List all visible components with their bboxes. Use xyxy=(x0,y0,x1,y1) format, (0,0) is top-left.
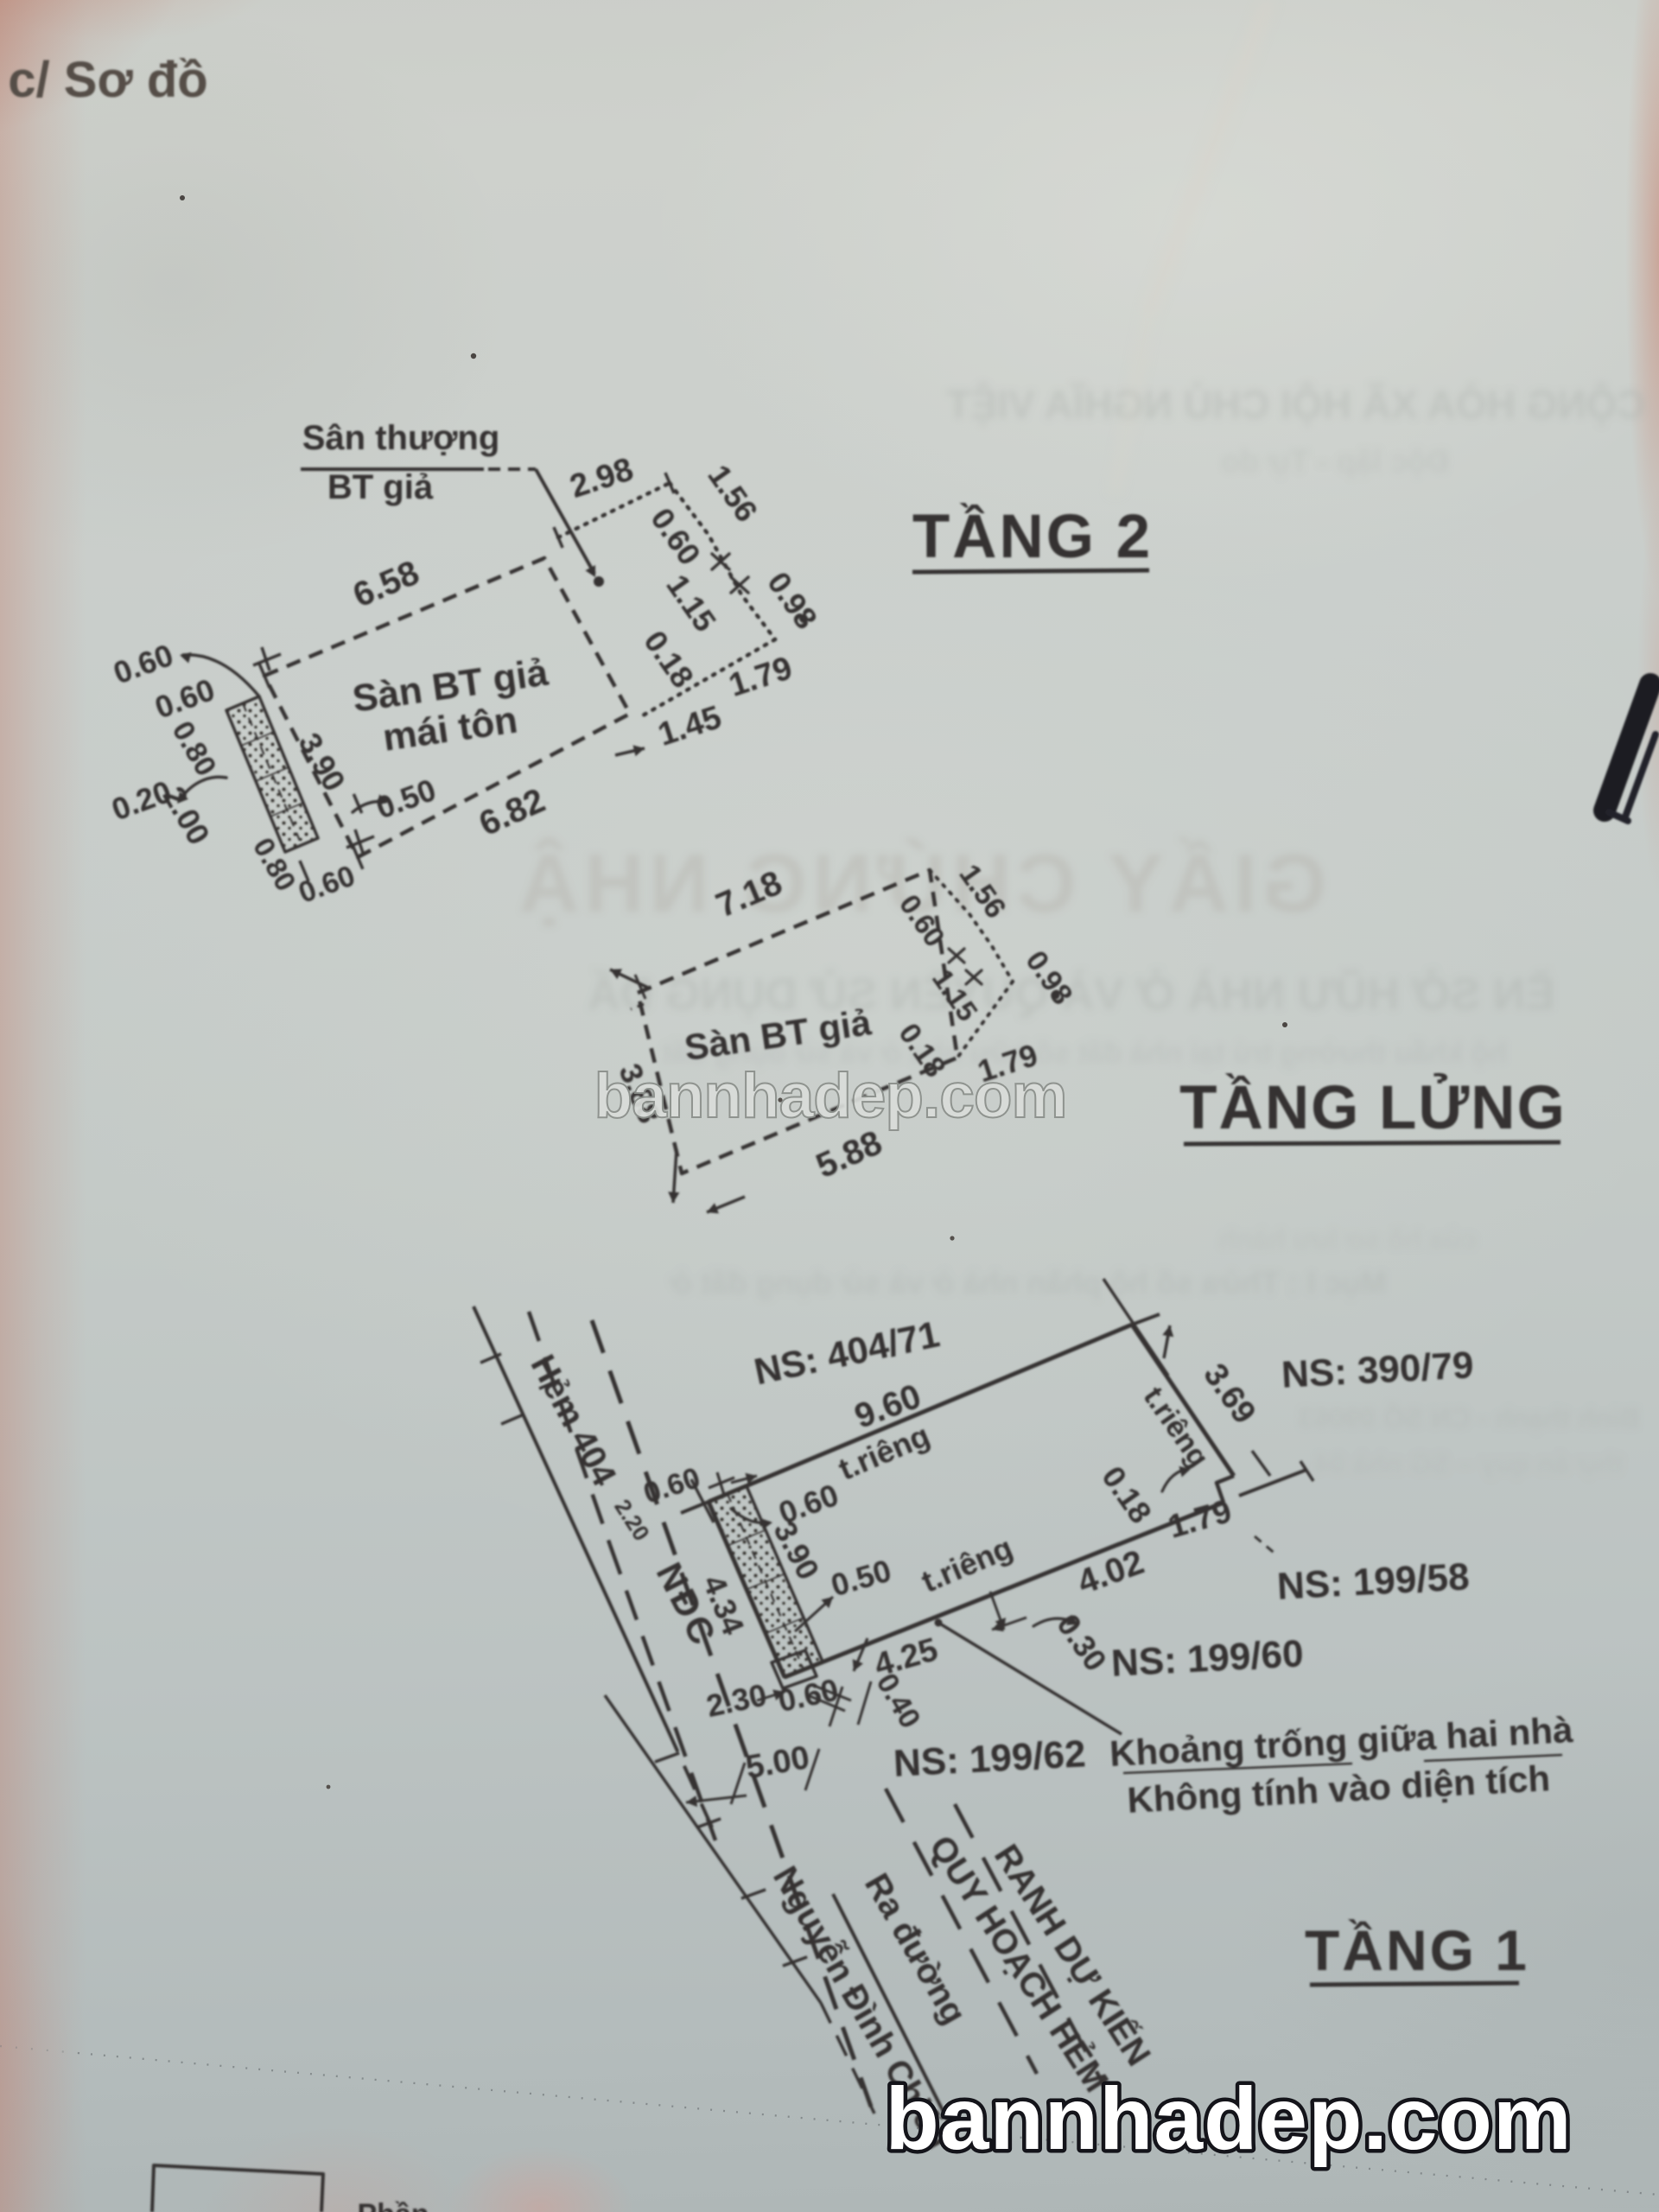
svg-text:Binh thạnh - CN SỐ 09063: Binh thạnh - CN SỐ 09063 xyxy=(1299,1402,1640,1433)
svg-text:bannhadep.com: bannhadep.com xyxy=(885,2069,1572,2168)
svg-text:5.88: 5.88 xyxy=(810,1123,887,1185)
svg-text:NS: 199/60: NS: 199/60 xyxy=(1110,1632,1305,1685)
svg-text:0.18: 0.18 xyxy=(637,624,701,694)
svg-text:TẦNG LỬNG: TẦNG LỬNG xyxy=(1179,1073,1567,1142)
svg-text:của hồ sơ lưu hành: của hồ sơ lưu hành xyxy=(1219,1224,1477,1255)
svg-text:1.79: 1.79 xyxy=(1164,1493,1236,1546)
svg-text:0.60: 0.60 xyxy=(150,671,219,725)
svg-text:0.80: 0.80 xyxy=(166,715,223,781)
svg-text:NS: 390/79: NS: 390/79 xyxy=(1281,1344,1475,1396)
svg-text:BT giả: BT giả xyxy=(327,468,434,506)
svg-text:NS: 199/62: NS: 199/62 xyxy=(893,1732,1087,1785)
svg-text:CỘNG HÒA XÃ HỘI CHỦ NGHĨA VIỆT: CỘNG HÒA XÃ HỘI CHỦ NGHĨA VIỆT xyxy=(946,382,1645,427)
svg-text:3.69: 3.69 xyxy=(1196,1357,1262,1431)
svg-text:0.60: 0.60 xyxy=(644,501,708,571)
svg-text:bannhadep.com: bannhadep.com xyxy=(594,1061,1067,1131)
svg-text:0.60: 0.60 xyxy=(295,859,359,909)
svg-text:TẦNG 1: TẦNG 1 xyxy=(1305,1918,1529,1982)
svg-text:0.98: 0.98 xyxy=(760,565,824,635)
svg-text:1.79: 1.79 xyxy=(725,650,797,704)
svg-text:1.45: 1.45 xyxy=(654,699,726,753)
svg-text:0.18: 0.18 xyxy=(1095,1459,1159,1529)
svg-text:NS: 199/58: NS: 199/58 xyxy=(1276,1555,1471,1608)
svg-text:2.98: 2.98 xyxy=(566,451,638,505)
svg-text:2.30: 2.30 xyxy=(703,1676,770,1724)
svg-text:Độc lập - Tự do: Độc lập - Tự do xyxy=(1221,443,1449,479)
svg-text:TẦNG 2: TẦNG 2 xyxy=(912,503,1153,571)
svg-text:4.02: 4.02 xyxy=(1072,1543,1148,1602)
svg-text:6.82: 6.82 xyxy=(474,781,550,843)
svg-text:0.60: 0.60 xyxy=(109,637,178,690)
svg-text:Sân thượng: Sân thượng xyxy=(302,419,500,457)
svg-text:thự án quy – SG nhà 04: thự án quy – SG nhà 04 xyxy=(1314,1448,1624,1479)
svg-text:5.00: 5.00 xyxy=(743,1739,812,1786)
svg-text:1.56: 1.56 xyxy=(701,458,765,528)
svg-text:0.50: 0.50 xyxy=(827,1553,895,1604)
svg-text:Phần: Phần xyxy=(357,2198,429,2212)
svg-text:3.90: 3.90 xyxy=(292,727,353,797)
svg-text:c/ Sơ đồ: c/ Sơ đồ xyxy=(8,52,207,108)
svg-text:Mục I : Thửa số hộ phần nhà ở: Mục I : Thửa số hộ phần nhà ở và sử dụng… xyxy=(670,1265,1387,1300)
svg-text:Hẻm 404: Hẻm 404 xyxy=(523,1349,623,1493)
svg-text:6.58: 6.58 xyxy=(347,554,424,615)
